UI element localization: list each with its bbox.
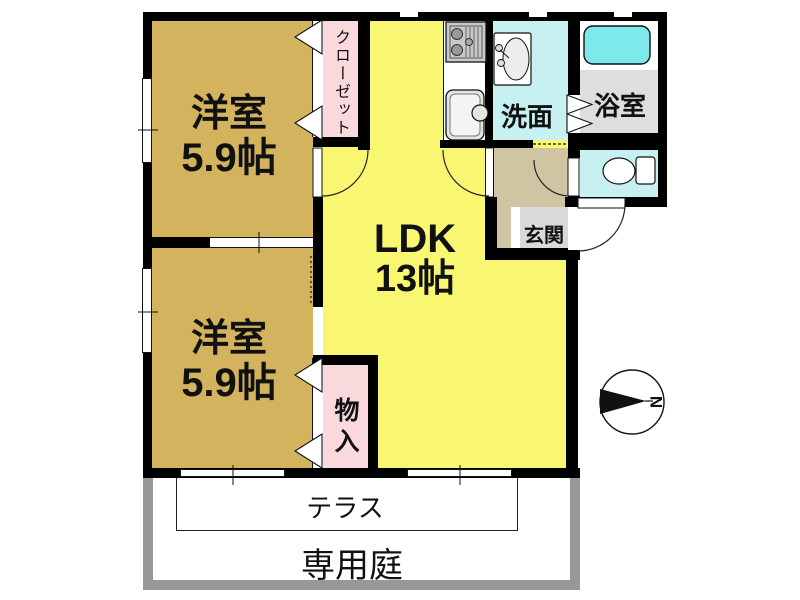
entrance-label: 玄関 [496,219,592,248]
folding-door-closet-1 [295,20,322,54]
door-arc-ldk-hall [443,150,489,196]
ldk-size: 13帖 [315,259,515,299]
garden-label: 専用庭 [252,538,452,587]
stove-icon [446,22,486,62]
floor-plan: N 洋室 5.9帖 洋室 5.9帖 LDK 13帖 クローゼット 物入 洗面 浴… [0,0,800,600]
compass-icon: N [600,370,666,434]
ldk-name: LDK [315,219,515,259]
bedroom1-size: 5.9帖 [129,136,329,180]
door-leaf-toilet [568,158,579,196]
bedroom2-name: 洋室 [129,317,329,361]
closet-label: クローゼット [330,27,351,139]
bedroom2-size: 5.9帖 [129,361,329,405]
door-arc-toilet [534,160,570,196]
storage-label: 物入 [331,390,359,466]
ldk-label: LDK 13帖 [315,219,515,299]
bathtub-icon [584,26,650,64]
terrace-label: テラス [245,488,445,525]
toilet-icon [603,157,655,184]
bedroom1-name: 洋室 [129,92,329,136]
folding-door-storage-2 [295,434,322,468]
door-leaf-entrance [578,198,625,208]
washbasin-icon [494,33,531,85]
bedroom1-label: 洋室 5.9帖 [129,92,329,180]
north-label: N [647,396,666,408]
bathroom-label: 浴室 [570,86,670,123]
door-leaf-ldk-hall [486,148,494,197]
washroom-label: 洗面 [477,97,577,134]
bedroom2-label: 洋室 5.9帖 [129,317,329,405]
